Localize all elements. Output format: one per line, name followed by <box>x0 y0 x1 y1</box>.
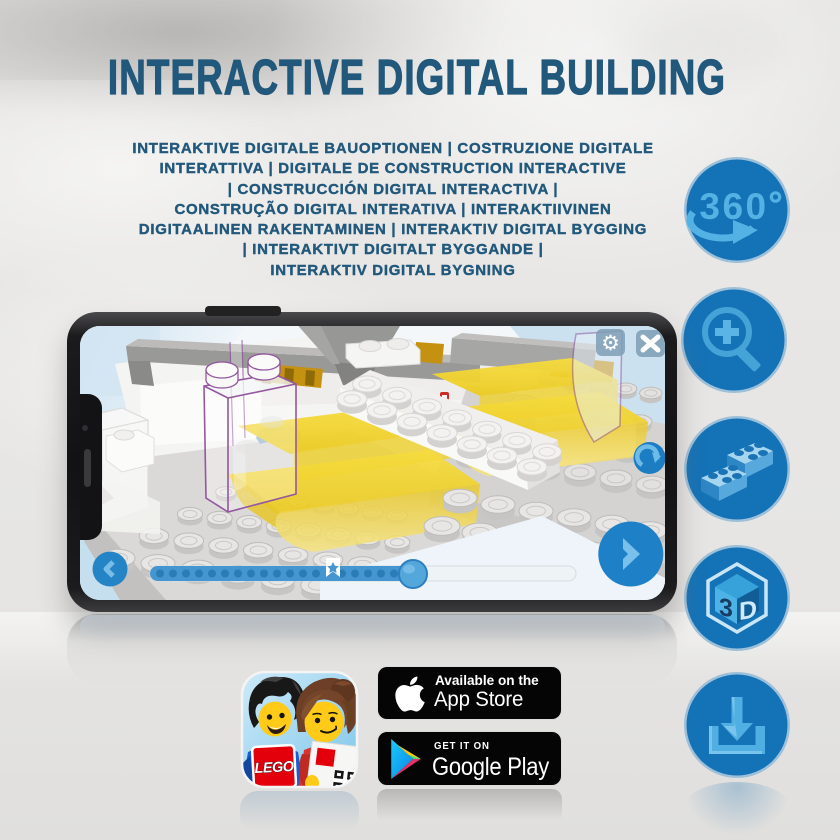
svg-text:D: D <box>739 595 757 626</box>
svg-text:LEGO: LEGO <box>254 759 295 777</box>
svg-text:⚙: ⚙ <box>601 332 620 355</box>
svg-text:3: 3 <box>719 593 733 623</box>
